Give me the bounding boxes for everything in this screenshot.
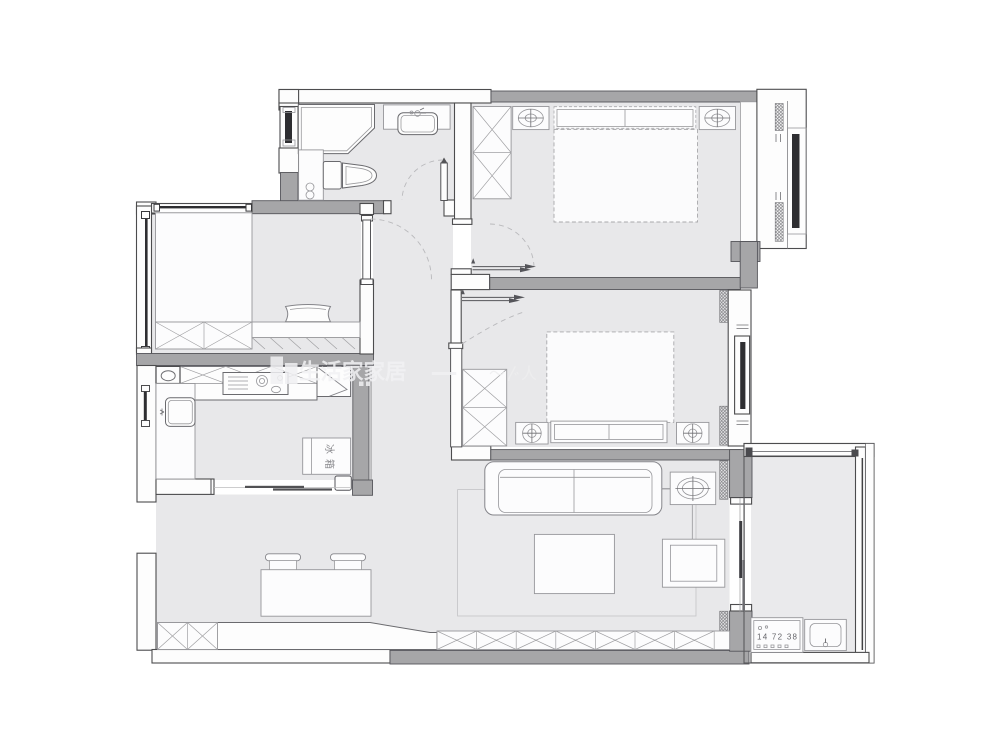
svg-text:生活家家居: 生活家家居 xyxy=(299,359,407,384)
svg-text:冰: 冰 xyxy=(323,444,336,454)
svg-text:〜〴人: 〜〴人 xyxy=(489,365,537,383)
svg-text:箱: 箱 xyxy=(323,459,336,469)
